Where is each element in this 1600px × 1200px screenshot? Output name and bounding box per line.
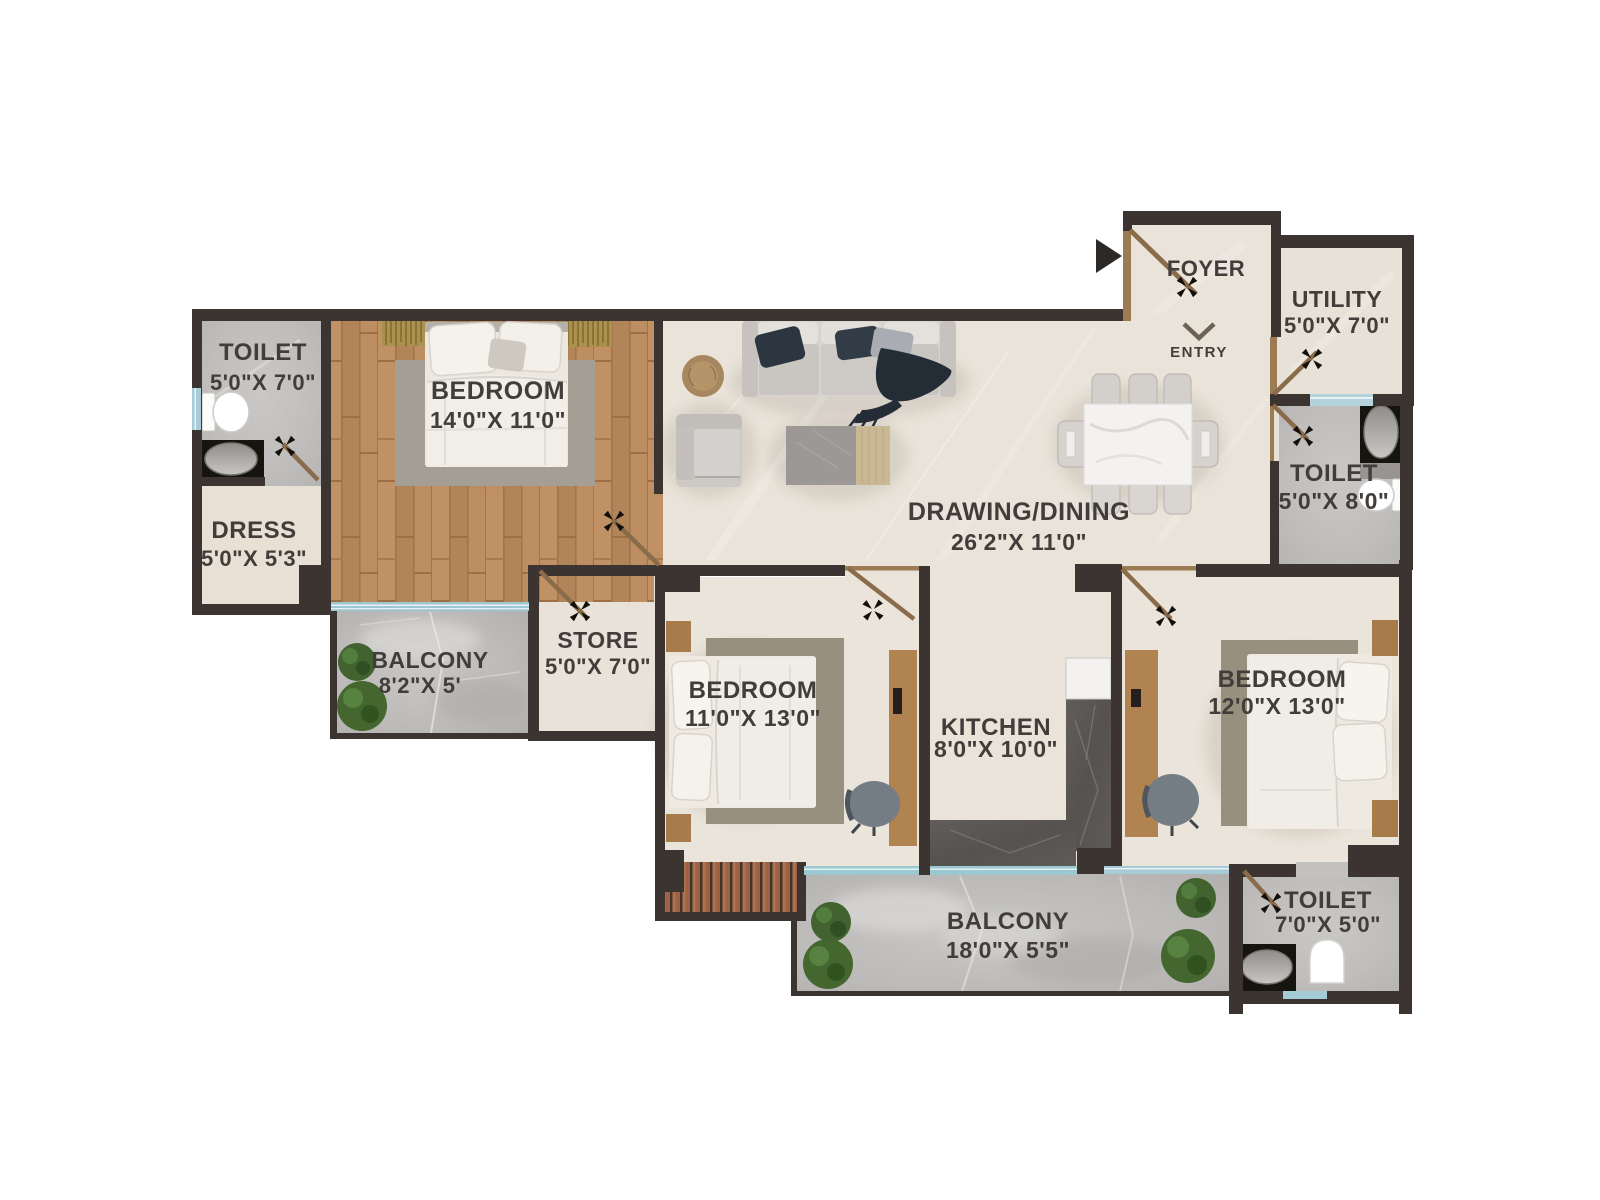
svg-text:8'0"X 10'0": 8'0"X 10'0" (934, 736, 1058, 762)
svg-text:TOILET: TOILET (219, 339, 307, 366)
svg-text:BEDROOM: BEDROOM (1218, 666, 1347, 693)
svg-text:ENTRY: ENTRY (1170, 344, 1228, 361)
svg-text:FOYER: FOYER (1167, 256, 1245, 281)
svg-text:5'0"X 7'0": 5'0"X 7'0" (210, 370, 316, 395)
svg-text:18'0"X 5'5": 18'0"X 5'5" (946, 937, 1070, 963)
svg-text:26'2"X 11'0": 26'2"X 11'0" (951, 529, 1087, 555)
svg-text:BEDROOM: BEDROOM (689, 677, 818, 704)
svg-text:STORE: STORE (557, 627, 638, 653)
svg-text:14'0"X 11'0": 14'0"X 11'0" (430, 407, 566, 433)
svg-text:DRESS: DRESS (211, 517, 296, 544)
svg-text:12'0"X 13'0": 12'0"X 13'0" (1208, 693, 1345, 719)
svg-text:DRAWING/DINING: DRAWING/DINING (908, 498, 1130, 526)
svg-text:BALCONY: BALCONY (947, 908, 1069, 935)
svg-text:5'0"X 8'0": 5'0"X 8'0" (1279, 488, 1390, 514)
svg-text:11'0"X 13'0": 11'0"X 13'0" (685, 705, 821, 731)
svg-text:5'0"X 5'3": 5'0"X 5'3" (201, 546, 307, 571)
svg-text:TOILET: TOILET (1290, 460, 1378, 487)
svg-text:BEDROOM: BEDROOM (431, 377, 565, 405)
svg-text:TOILET: TOILET (1284, 887, 1372, 914)
svg-text:8'2"X 5': 8'2"X 5' (379, 673, 461, 698)
svg-text:5'0"X 7'0": 5'0"X 7'0" (545, 654, 651, 679)
svg-text:BALCONY: BALCONY (371, 647, 488, 673)
svg-text:5'0"X 7'0": 5'0"X 7'0" (1284, 313, 1390, 338)
svg-text:UTILITY: UTILITY (1292, 286, 1382, 312)
svg-text:7'0"X 5'0": 7'0"X 5'0" (1275, 912, 1381, 937)
